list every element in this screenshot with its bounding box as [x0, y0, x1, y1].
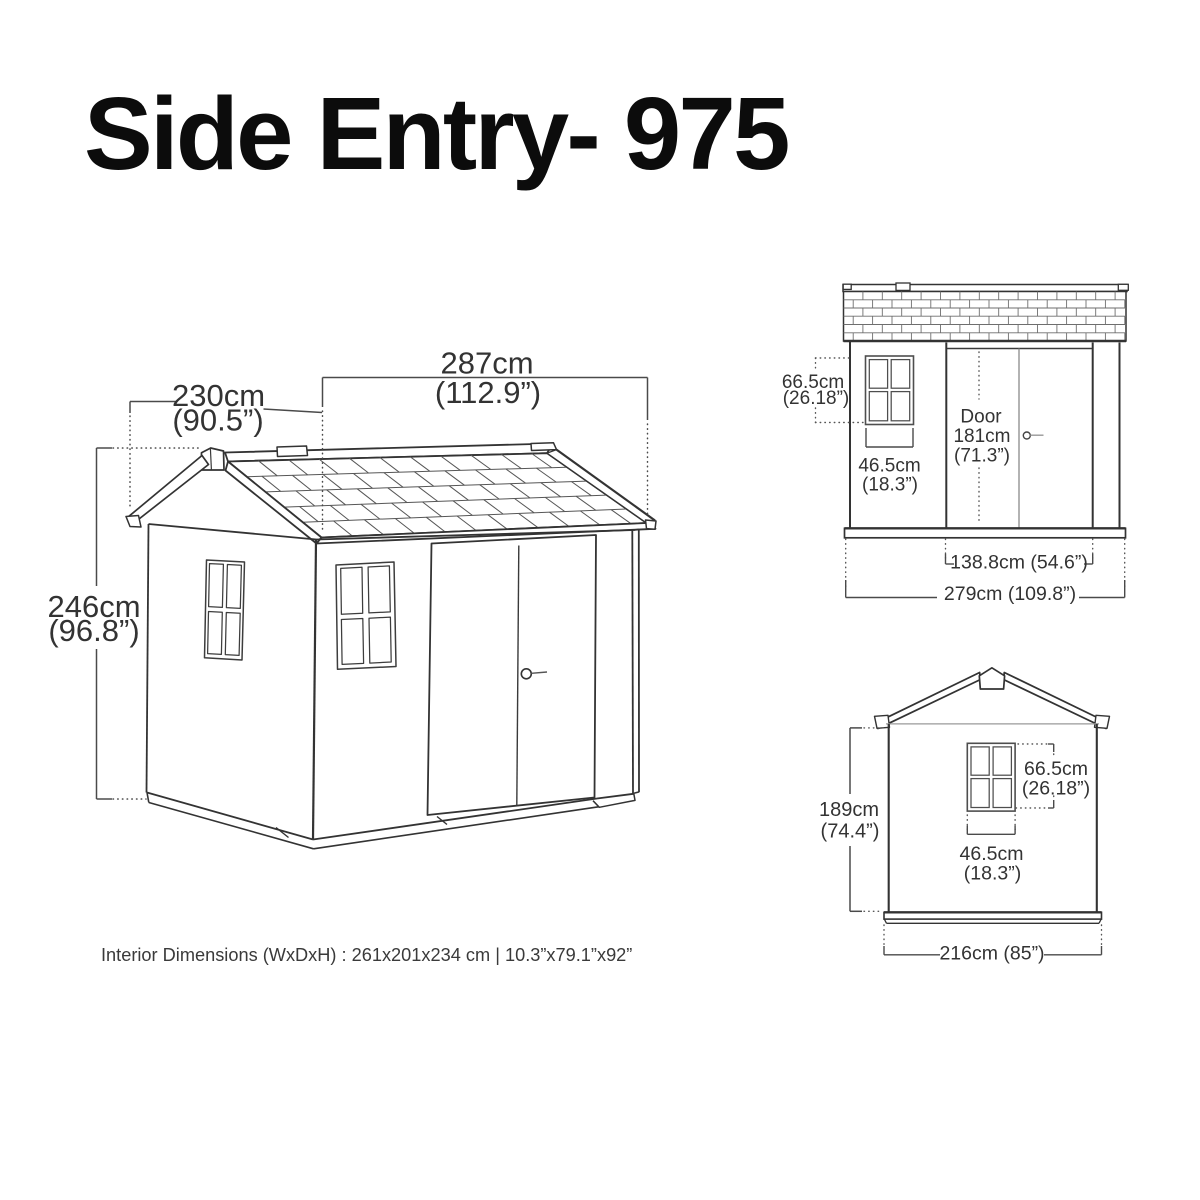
svg-text:(96.8”): (96.8”) [48, 613, 139, 648]
svg-text:(112.9”): (112.9”) [435, 375, 541, 410]
svg-text:Side Entry- 975: Side Entry- 975 [84, 76, 788, 191]
svg-text:(18.3”): (18.3”) [964, 863, 1021, 885]
svg-text:(90.5”): (90.5”) [172, 403, 263, 438]
svg-text:181cm: 181cm [953, 426, 1010, 447]
svg-text:(18.3”): (18.3”) [862, 475, 918, 496]
svg-text:(74.4”): (74.4”) [821, 821, 880, 843]
svg-text:(26.18”): (26.18”) [1022, 778, 1090, 800]
svg-text:(71.3”): (71.3”) [954, 446, 1010, 467]
svg-text:Door: Door [960, 407, 1002, 428]
svg-text:279cm (109.8”): 279cm (109.8”) [944, 583, 1076, 605]
svg-text:138.8cm (54.6”): 138.8cm (54.6”) [950, 552, 1088, 574]
svg-text:46.5cm: 46.5cm [858, 456, 920, 477]
svg-text:Interior Dimensions (WxDxH) :: Interior Dimensions (WxDxH) : 261x201x23… [101, 945, 632, 965]
svg-text:(26.18”): (26.18”) [783, 388, 850, 409]
svg-text:216cm (85”): 216cm (85”) [939, 943, 1044, 965]
svg-text:189cm: 189cm [819, 799, 879, 821]
